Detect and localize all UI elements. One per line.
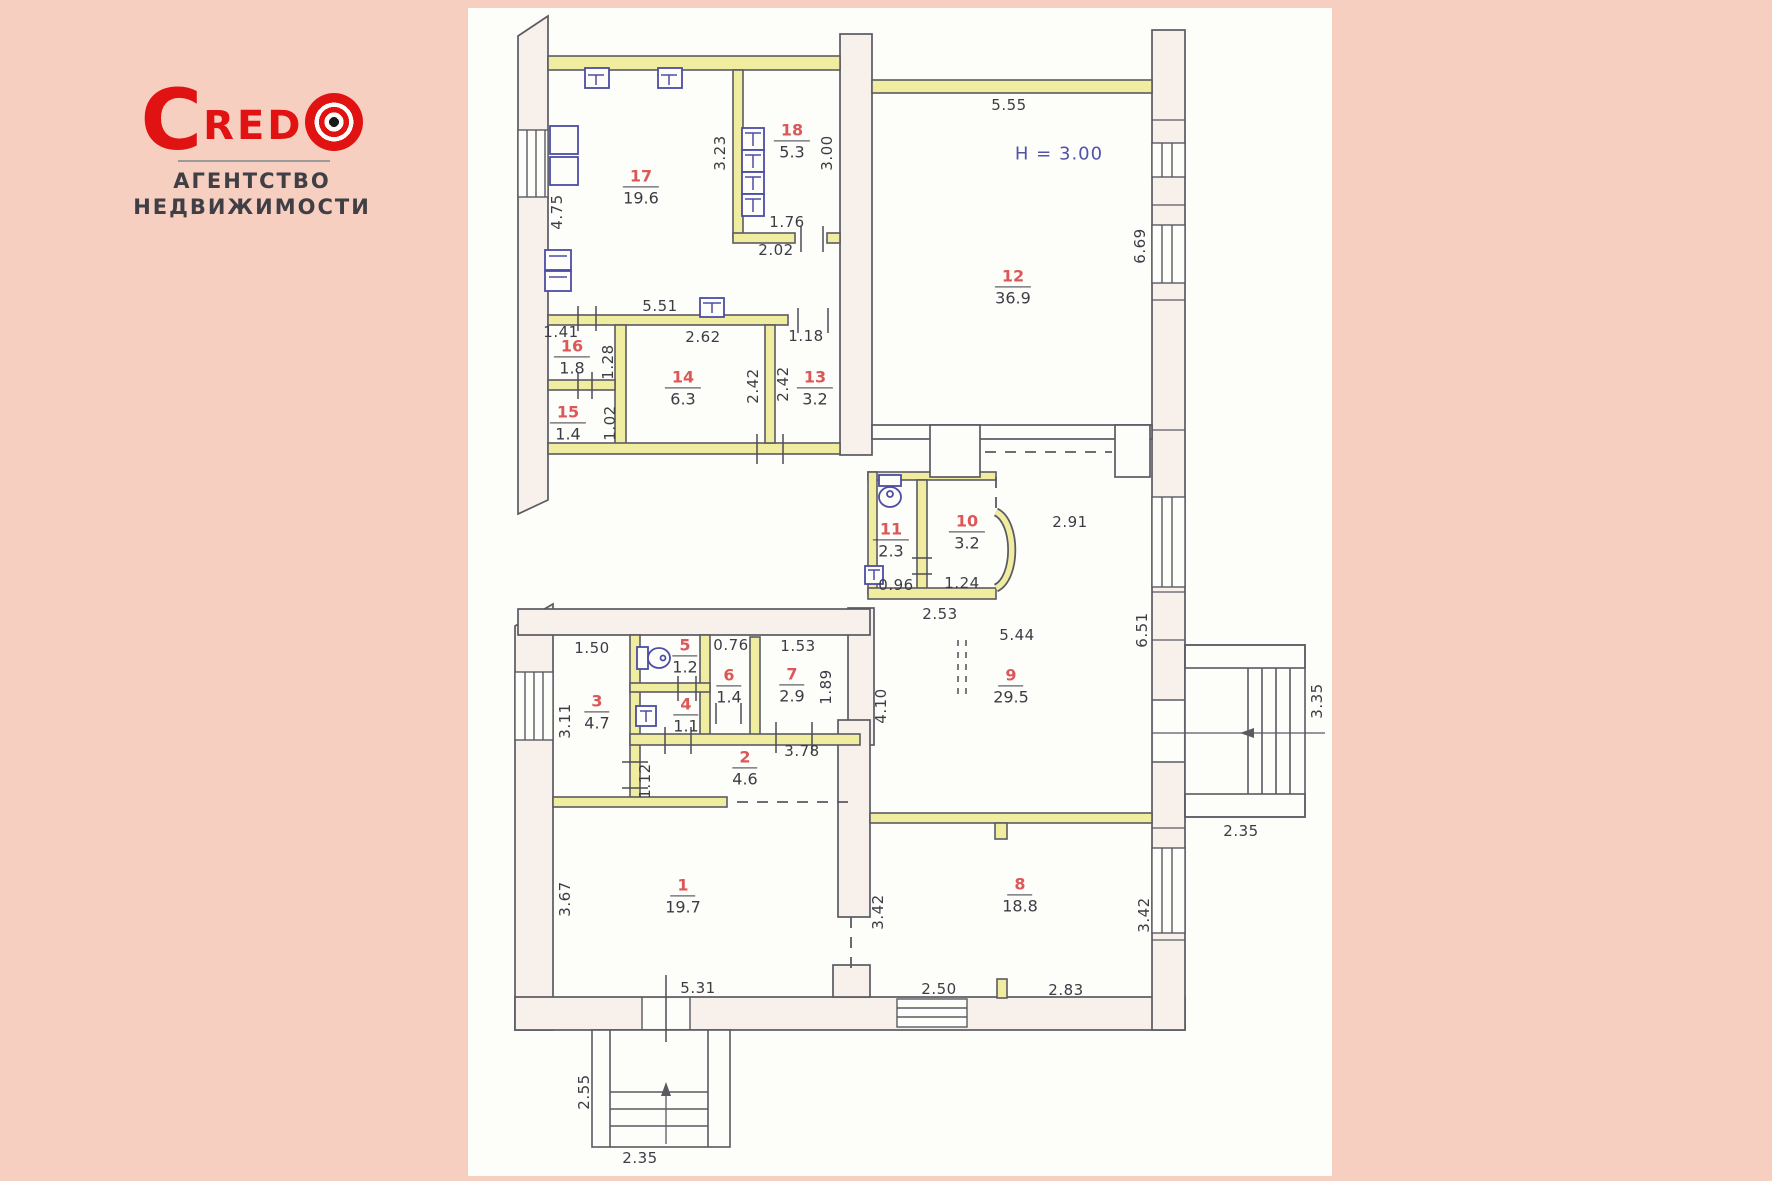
room-number: 17 (623, 167, 659, 187)
dim-label-7: 1.41 (543, 323, 578, 341)
room-label-11: 112.3 (873, 520, 909, 559)
dim-label-3: 5.55 (991, 96, 1026, 114)
room-area: 19.7 (665, 896, 701, 916)
dim-label-12: 2.42 (774, 366, 792, 401)
room-area: 3.2 (949, 532, 985, 552)
dim-label-21: 4.10 (872, 688, 890, 723)
dim-label-19: 5.44 (999, 626, 1034, 644)
dim-label-17: 2.53 (922, 605, 957, 623)
dim-label-25: 1.53 (780, 637, 815, 655)
room-label-8: 818.8 (1002, 875, 1038, 914)
room-area: 1.1 (673, 715, 698, 735)
room-number: 15 (550, 403, 586, 423)
room-area: 1.4 (550, 423, 586, 443)
dim-label-26: 1.89 (817, 669, 835, 704)
room-area: 5.3 (774, 141, 810, 161)
room-area: 4.7 (584, 712, 609, 732)
room-area: 36.9 (995, 287, 1031, 307)
room-area: 2.9 (779, 685, 804, 705)
room-label-12: 1236.9 (995, 267, 1031, 306)
dim-label-4: 1.76 (769, 213, 804, 231)
dim-label-9: 2.62 (685, 328, 720, 346)
room-area: 29.5 (993, 686, 1029, 706)
room-number: 4 (673, 695, 698, 715)
room-area: 2.3 (873, 540, 909, 560)
dim-label-13: 1.18 (788, 327, 823, 345)
room-label-4: 41.1 (673, 695, 698, 734)
dim-label-35: 2.55 (575, 1074, 593, 1109)
room-label-10: 103.2 (949, 512, 985, 551)
dim-label-38: 2.35 (1223, 822, 1258, 840)
room-number: 8 (1007, 875, 1032, 895)
dim-label-0: 4.75 (548, 194, 566, 229)
dim-label-20: 6.51 (1133, 612, 1151, 647)
dim-label-30: 5.31 (680, 979, 715, 997)
dim-label-31: 2.50 (921, 980, 956, 998)
room-label-7: 72.9 (779, 665, 804, 704)
room-number: 1 (670, 876, 695, 896)
room-number: 3 (584, 692, 609, 712)
dim-label-16: 1.24 (944, 574, 979, 592)
white-walls (872, 425, 1152, 477)
room-label-1: 119.7 (665, 876, 701, 915)
dim-label-18: 2.91 (1052, 513, 1087, 531)
dim-label-36: 2.35 (622, 1149, 657, 1167)
dim-label-8: 5.51 (642, 297, 677, 315)
dim-label-10: 1.28 (599, 344, 617, 379)
room-area: 3.2 (797, 388, 833, 408)
room-number: 7 (779, 665, 804, 685)
dim-label-11: 2.42 (744, 368, 762, 403)
room-number: 6 (716, 666, 741, 686)
room-number: 5 (672, 636, 697, 656)
page-background: C RED АГЕНТСТВО НЕДВИЖИМОСТИ (0, 0, 1772, 1181)
room-area: 1.2 (672, 656, 697, 676)
dim-label-23: 3.11 (556, 703, 574, 738)
room-area: 4.6 (732, 768, 757, 788)
dim-label-33: 3.42 (869, 894, 887, 929)
toilet-icon (879, 475, 901, 486)
dim-label-1: 3.23 (711, 135, 729, 170)
room-label-6: 61.4 (716, 666, 741, 705)
room-label-15: 151.4 (550, 403, 586, 442)
room-area: 6.3 (665, 388, 701, 408)
dim-label-22: 1.50 (574, 639, 609, 657)
room-label-5: 51.2 (672, 636, 697, 675)
dim-label-24: 0.76 (713, 636, 748, 654)
room-label-13: 133.2 (797, 368, 833, 407)
room-label-17: 1719.6 (623, 167, 659, 206)
room-label-3: 34.7 (584, 692, 609, 731)
dim-label-5: 2.02 (758, 241, 793, 259)
room-label-16: 161.8 (554, 337, 590, 376)
dim-label-37: 3.35 (1308, 683, 1326, 718)
dim-label-6: 6.69 (1131, 228, 1149, 263)
room-number: 14 (665, 368, 701, 388)
room-area: 1.4 (716, 686, 741, 706)
dim-label-15: 0.96 (878, 576, 913, 594)
right-wall-door-opening (1154, 700, 1184, 762)
room-number: 18 (774, 121, 810, 141)
room-area: 19.6 (623, 187, 659, 207)
dim-label-27: 3.78 (784, 742, 819, 760)
dim-label-32: 2.83 (1048, 981, 1083, 999)
room-number: 10 (949, 512, 985, 532)
height-note: H = 3.00 (1015, 144, 1103, 165)
bottom-staircase (592, 1030, 730, 1147)
room-area: 1.8 (554, 357, 590, 377)
room-number: 12 (995, 267, 1031, 287)
room-label-14: 146.3 (665, 368, 701, 407)
room-number: 11 (873, 520, 909, 540)
dim-label-2: 3.00 (818, 135, 836, 170)
room-label-18: 185.3 (774, 121, 810, 160)
room-number: 13 (797, 368, 833, 388)
dim-label-29: 3.67 (556, 881, 574, 916)
room-number: 9 (998, 666, 1023, 686)
room-label-9: 929.5 (993, 666, 1029, 705)
dim-label-34: 3.42 (1135, 897, 1153, 932)
dashed-marks (958, 640, 966, 700)
room-label-2: 24.6 (732, 748, 757, 787)
dim-label-28: 1.12 (636, 763, 654, 798)
room-area: 18.8 (1002, 895, 1038, 915)
room-number: 2 (732, 748, 757, 768)
dim-label-14: 1.02 (601, 405, 619, 440)
sink-icon (637, 647, 648, 669)
